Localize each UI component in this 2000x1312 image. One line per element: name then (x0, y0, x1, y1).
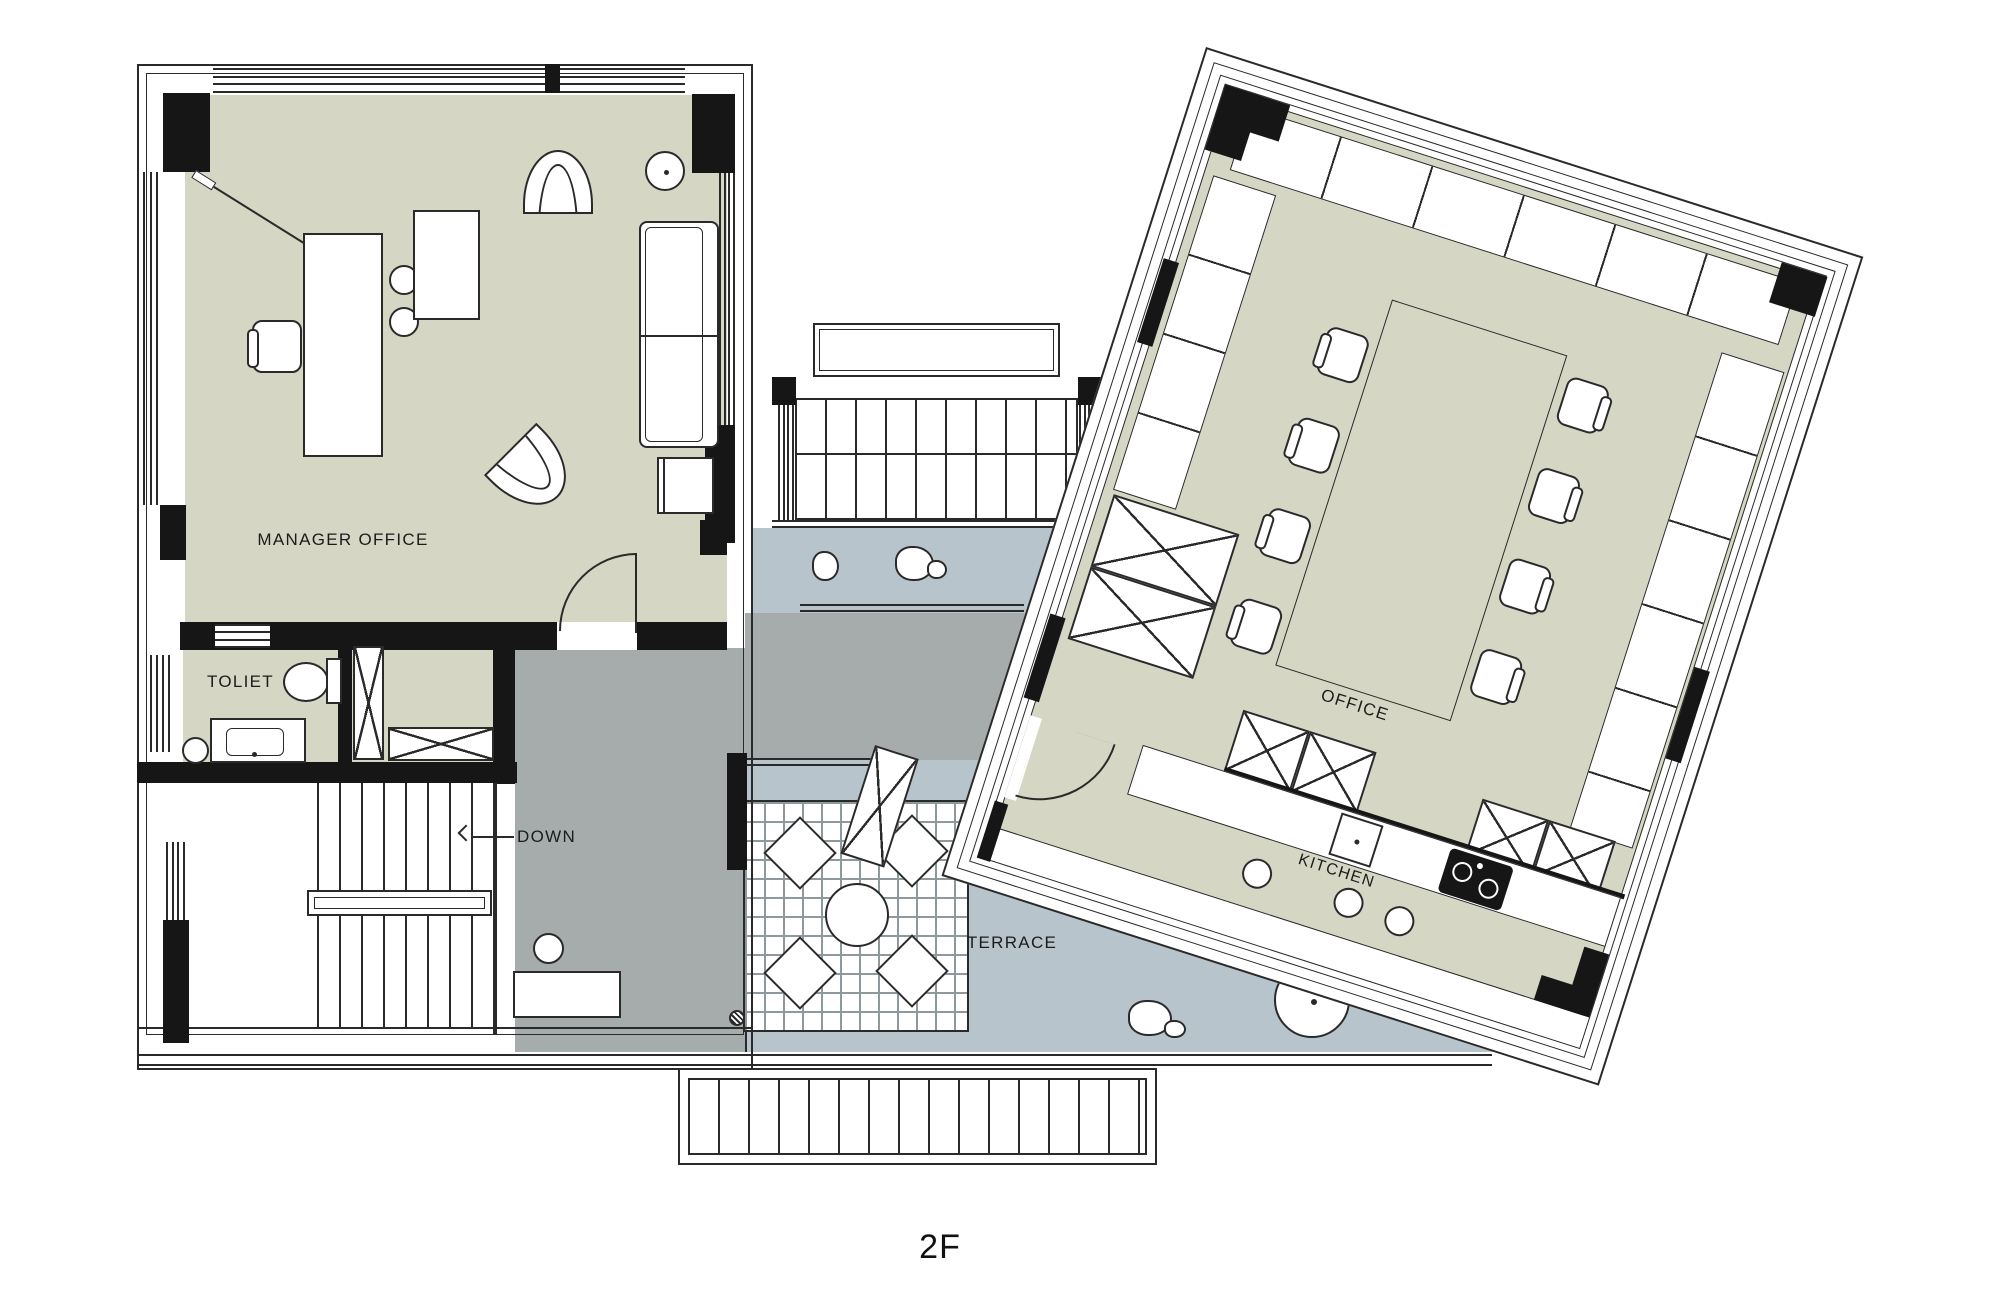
rug (413, 210, 480, 320)
wall-corridor-terrace (727, 753, 747, 870)
wall-segment (163, 920, 189, 1005)
wall-deck-cap-left (772, 377, 796, 405)
wall-segment (637, 622, 727, 650)
room-label-toilet: TOLIET (193, 672, 288, 692)
room-label-manager-office: MANAGER OFFICE (243, 530, 443, 550)
manager-desk (303, 233, 383, 457)
deck-mid-line (795, 453, 1078, 455)
round-basin (182, 737, 209, 764)
terrace-table (825, 883, 889, 947)
x-cabinet (388, 727, 494, 761)
wall-segment (163, 93, 210, 172)
toilet-fixture-tank (326, 658, 342, 704)
plan-bottom-line2 (137, 1064, 1492, 1066)
balcony-railing-inner (819, 329, 1054, 371)
plan-bottom-line1 (137, 1054, 1492, 1056)
stone (927, 560, 947, 579)
wall-segment (692, 94, 735, 173)
window-band-top2 (560, 68, 685, 93)
bench (513, 971, 621, 1018)
window-gap-office-bottom (215, 624, 270, 648)
glass-wall-line1 (800, 604, 1024, 606)
plant-icon (645, 151, 685, 191)
wall-segment (160, 505, 186, 560)
stairs-handrail (307, 890, 492, 916)
floor-title: 2F (890, 1228, 990, 1267)
desk-chair (252, 320, 302, 373)
wall-below-toilet (137, 762, 517, 783)
deck-planks-top (795, 398, 1078, 520)
window-band-left-toilet (150, 655, 170, 752)
door-leaf (635, 553, 637, 633)
stone (812, 551, 839, 581)
room-label-down: DOWN (517, 827, 576, 847)
window-band-left1 (137, 172, 158, 505)
down-leader-line (472, 836, 514, 838)
deck-planks-bottom (678, 1068, 1157, 1165)
sink-vanity (210, 718, 306, 763)
toilet-fixture-bowl (283, 662, 329, 702)
wall-closet-right (493, 622, 515, 784)
window-band-top1 (213, 68, 545, 93)
plant-icon (533, 933, 564, 964)
left-building-bottom-line1 (137, 1027, 753, 1029)
tv-cabinet (657, 457, 714, 514)
wall-segment (545, 64, 560, 93)
window-band-office-right (719, 170, 735, 434)
wall-segment (700, 520, 727, 555)
wall-segment (163, 1003, 189, 1043)
sofa (639, 221, 719, 448)
window-band-left-stairs (166, 842, 185, 920)
glass-wall-line2 (800, 610, 1024, 612)
floor-plan-2f: TERRACE (0, 0, 2000, 1312)
room-label-terrace: TERRACE (953, 933, 1071, 953)
stone (1164, 1020, 1186, 1038)
x-cabinet (353, 646, 384, 760)
